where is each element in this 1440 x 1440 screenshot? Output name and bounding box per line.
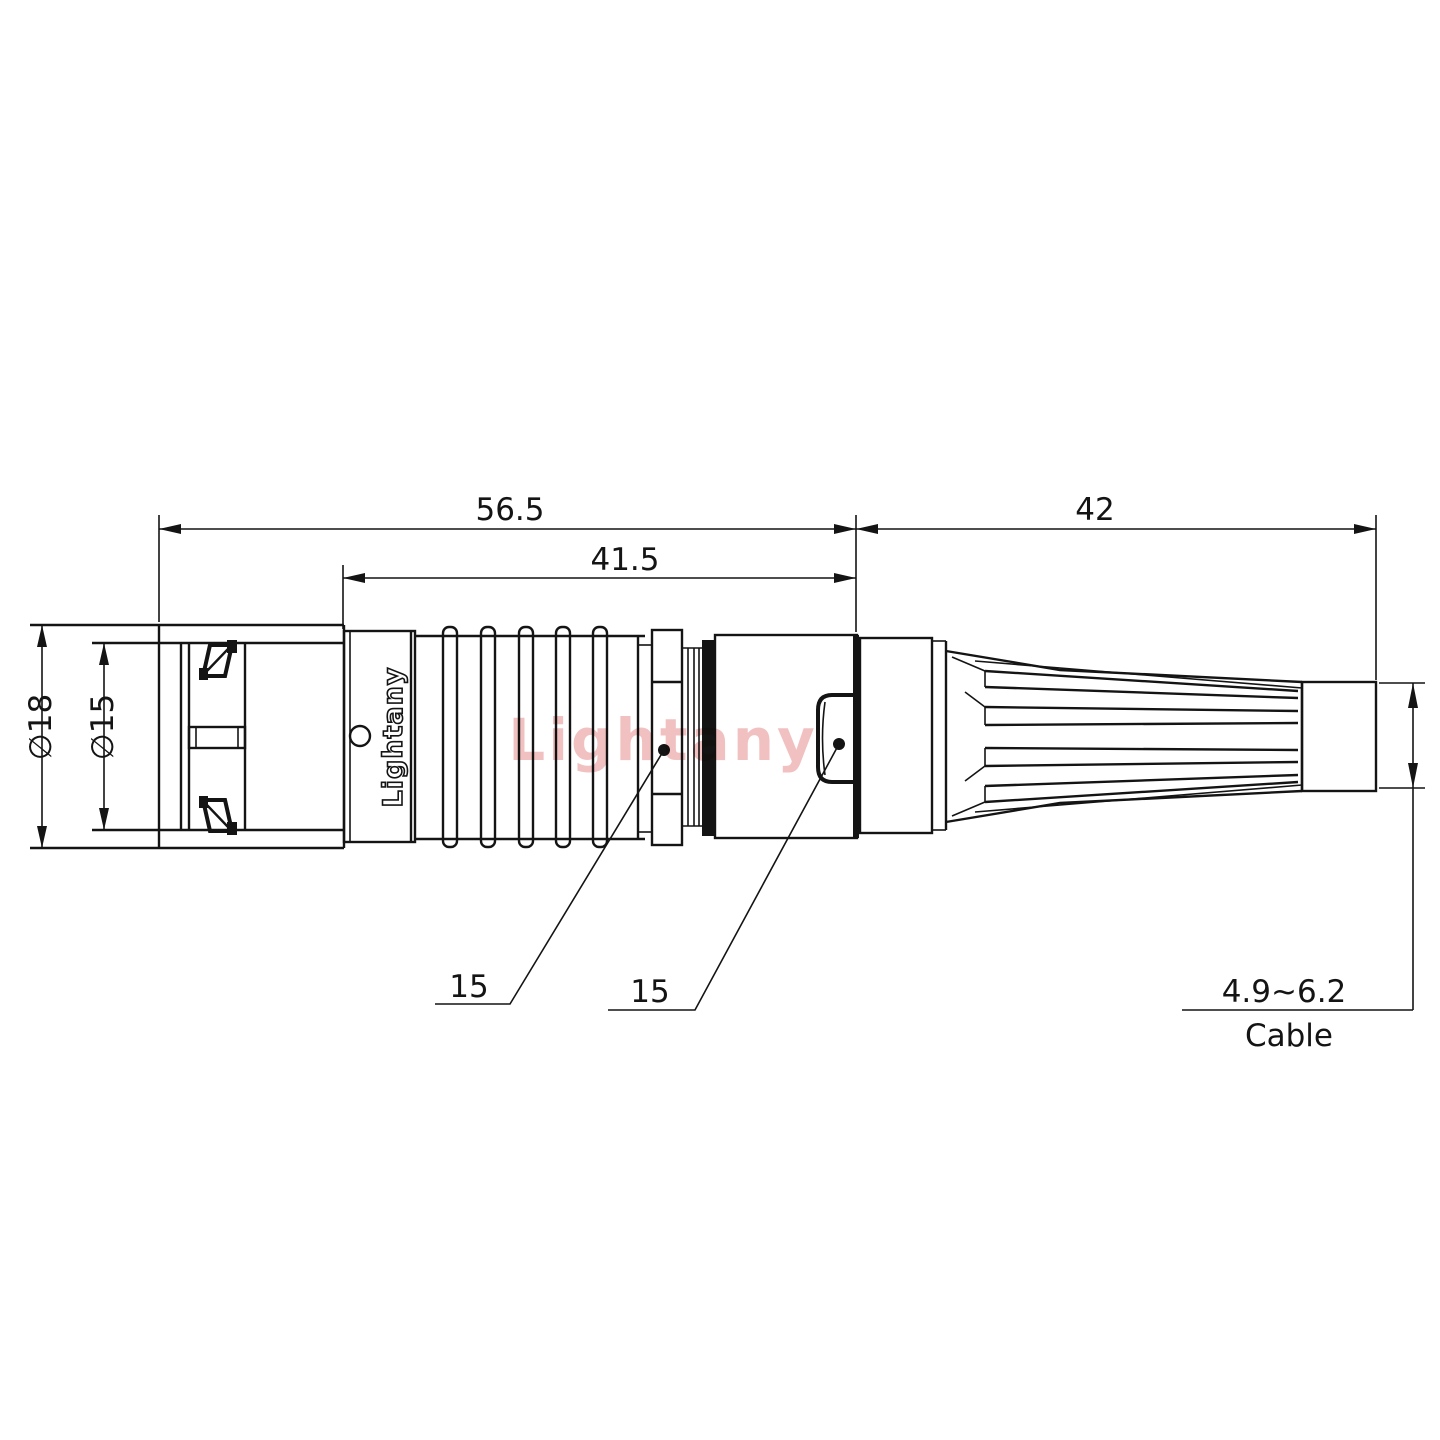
center-slot [189, 727, 245, 748]
leader-left: 15 [435, 744, 670, 1005]
connector-drawing: 56.5 41.5 42 ∅18 ∅15 15 15 [0, 0, 1440, 1440]
strain-relief-boot [946, 651, 1302, 822]
front-cap-section [30, 625, 344, 848]
rear-cap-section [860, 638, 946, 833]
leader-right-label: 15 [630, 974, 669, 1010]
dimension-outer-diameter: ∅18 [23, 625, 59, 848]
leader-right: 15 [608, 738, 845, 1010]
dim-front-section-label: 41.5 [590, 542, 659, 578]
logo-text-on-ring: Lightany [378, 667, 409, 808]
dim-boot-length-label: 42 [1075, 492, 1114, 528]
leader-left-label: 15 [449, 969, 488, 1005]
dimension-front-section: 41.5 [343, 542, 856, 629]
dim-outer-diameter-label: ∅18 [23, 694, 59, 760]
dim-total-length-label: 56.5 [475, 492, 544, 528]
ring-dot-marker [350, 726, 370, 746]
cable-end-block [1302, 682, 1376, 791]
watermark-text: Lightany [508, 706, 818, 774]
dimension-total-length: 56.5 [159, 492, 856, 632]
cable-diameter-range-label: 4.9~6.2 [1222, 974, 1347, 1010]
latch-key-top [199, 640, 237, 680]
technical-drawing-page: 56.5 41.5 42 ∅18 ∅15 15 15 [0, 0, 1440, 1440]
dim-inner-diameter-label: ∅15 [85, 694, 121, 760]
dimension-cable: 4.9~6.2 Cable [1182, 683, 1425, 1054]
dimension-boot-length: 42 [856, 492, 1376, 680]
dimension-inner-diameter: ∅15 [85, 643, 121, 830]
cable-label: Cable [1245, 1018, 1333, 1054]
